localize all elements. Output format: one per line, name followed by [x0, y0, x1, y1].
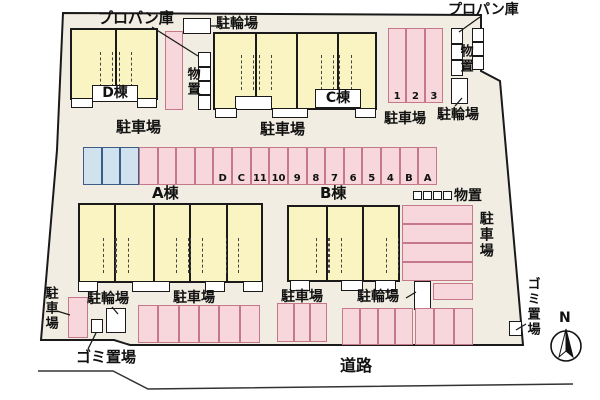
parking-ne-label: 駐車場	[384, 112, 426, 127]
bicycle-ne-label: 駐輪場	[437, 108, 479, 123]
building-d-label: D棟	[102, 86, 128, 101]
porch	[355, 108, 376, 118]
porch	[71, 98, 93, 108]
parking-spot	[179, 305, 199, 343]
storage-box	[423, 191, 432, 200]
building-d-entrance: D棟	[92, 85, 138, 102]
stair-icon	[339, 55, 352, 90]
parking-spot	[138, 305, 158, 343]
parking-spot: 9	[288, 147, 307, 185]
porch	[243, 281, 263, 292]
parking-spot: 10	[269, 147, 288, 185]
bicycle-parking-sw	[106, 308, 126, 333]
parking-spot: 4	[381, 147, 400, 185]
stair-icon	[100, 52, 113, 87]
garbage-area-sw	[91, 319, 103, 333]
parking-spot	[139, 147, 158, 185]
stair-icon	[103, 238, 116, 273]
parking-spot	[277, 303, 294, 342]
storage-box	[472, 28, 484, 42]
south-parking-group	[138, 305, 260, 343]
parking-spot	[360, 308, 378, 345]
stair-icon	[119, 52, 132, 87]
compass-icon	[551, 329, 581, 361]
numbered-parking: 123	[388, 28, 443, 103]
building-c-entrance: C棟	[315, 89, 361, 108]
bicycle-parking-b	[414, 281, 431, 310]
propane-ne-label: プロパン庫	[448, 3, 519, 18]
south-parking-group	[277, 303, 327, 342]
parking-spot: B	[400, 147, 419, 185]
parking-spot-label: B	[401, 173, 418, 184]
garbage-sw-label: ゴミ置場	[76, 350, 136, 366]
parking-spot-label: 10	[270, 173, 287, 184]
parking-w-label: 駐車場	[43, 286, 57, 331]
middle-parking-row: DC1110987654BA	[83, 147, 437, 185]
porch	[132, 281, 170, 292]
parking-spot	[378, 308, 396, 345]
stair-icon	[316, 238, 329, 273]
porch	[272, 108, 308, 118]
storage-ne-label: 物置	[458, 44, 472, 74]
storage-nw-label: 物置	[185, 67, 199, 97]
parking-spot-label: 5	[363, 173, 380, 184]
north-label: N	[559, 311, 571, 326]
parking-spot	[310, 303, 327, 342]
parking-spot	[240, 305, 260, 343]
building-a-label: A棟	[152, 186, 179, 202]
parking-spot	[395, 308, 413, 345]
bicycle-sb-label: 駐輪場	[357, 290, 399, 305]
porch	[215, 108, 237, 118]
parking-spot	[165, 31, 183, 110]
parking-spot: 5	[362, 147, 381, 185]
south-parking-group	[415, 308, 473, 345]
parking-c-label: 駐車場	[260, 122, 305, 138]
parking-spot: 11	[251, 147, 270, 185]
building-c-label: C棟	[326, 91, 350, 106]
parking-spot	[402, 205, 473, 224]
porch	[137, 98, 157, 108]
parking-d-label: 駐車場	[116, 120, 161, 136]
parking-spot	[158, 147, 177, 185]
parking-spot	[294, 303, 311, 342]
parking-spot: A	[418, 147, 437, 185]
parking-spot: 2	[406, 28, 424, 103]
bicycle-parking-north	[183, 18, 211, 34]
unit-divider	[362, 207, 364, 280]
stair-icon	[321, 55, 334, 90]
site-plan: D棟 C棟 物置 123 物置 DC1110987654BA	[0, 0, 600, 400]
parking-spot-label: 9	[289, 173, 306, 184]
parking-spot	[158, 305, 178, 343]
parking-spot	[68, 297, 88, 338]
bicycle-n-label: 駐輪場	[216, 17, 258, 32]
parking-spot: 8	[307, 147, 326, 185]
stair-icon	[329, 238, 342, 273]
building-b-label: B棟	[320, 186, 346, 202]
storage-box	[472, 56, 484, 70]
unit-divider	[153, 205, 155, 281]
parking-spot	[199, 305, 219, 343]
south-parking-group	[342, 308, 413, 345]
building-c-entrance	[235, 96, 272, 110]
parking-spot-label: 6	[345, 173, 362, 184]
parking-spot-label: 3	[426, 91, 442, 102]
storage-box	[413, 191, 422, 200]
parking-spot	[454, 308, 473, 345]
parking-spot: 1	[388, 28, 406, 103]
parking-spot	[102, 147, 121, 185]
storage-e-label: 物置	[454, 189, 482, 204]
parking-spot-label: A	[419, 173, 436, 184]
parking-spot	[402, 262, 473, 281]
road-lower-edge	[38, 371, 573, 389]
garbage-area-se	[509, 321, 522, 336]
garbage-se-label: ゴミ置場	[525, 277, 539, 337]
parking-spot: 7	[325, 147, 344, 185]
stair-icon	[241, 55, 254, 90]
bicycle-parking-ne	[451, 78, 468, 104]
storage-box	[443, 191, 452, 200]
parking-spot-label: D	[214, 173, 231, 184]
parking-spot	[433, 283, 473, 300]
parking-spot	[402, 243, 473, 262]
propane-nw-label: プロパン庫	[98, 11, 174, 27]
parking-spot: C	[232, 147, 251, 185]
stair-icon	[190, 238, 203, 273]
storage-box	[198, 95, 211, 110]
parking-sa-label: 駐車場	[173, 291, 215, 306]
leader-garbage-sw	[88, 333, 96, 349]
parking-spot-label: 2	[407, 91, 423, 102]
parking-spot-label: 8	[308, 173, 325, 184]
parking-spot-label: 7	[326, 173, 343, 184]
parking-spot	[402, 224, 473, 243]
parking-spot	[415, 308, 434, 345]
parking-spot	[83, 147, 102, 185]
parking-spot-label: 4	[382, 173, 399, 184]
storage-box	[433, 191, 442, 200]
stair-icon	[386, 238, 399, 273]
stair-icon	[176, 238, 189, 273]
parking-spot	[120, 147, 139, 185]
propane-box-nw	[198, 52, 211, 67]
bicycle-sw-label: 駐輪場	[87, 292, 129, 307]
parking-spot	[195, 147, 214, 185]
parking-spot	[342, 308, 360, 345]
parking-e-label: 駐車場	[478, 211, 493, 259]
parking-spot	[434, 308, 453, 345]
stair-icon	[259, 55, 272, 90]
parking-spot	[219, 305, 239, 343]
unit-divider	[296, 34, 298, 108]
building-b	[287, 205, 400, 282]
stair-icon	[116, 238, 129, 273]
east-parking	[402, 205, 473, 281]
storage-box	[451, 28, 463, 44]
stair-icon	[226, 238, 239, 273]
parking-spot: 3	[425, 28, 443, 103]
parking-spot-label: 1	[389, 91, 405, 102]
parking-sb-label: 駐車場	[281, 290, 323, 305]
parking-spot: 6	[344, 147, 363, 185]
parking-spot-label: 11	[252, 173, 269, 184]
parking-spot	[176, 147, 195, 185]
parking-spot: D	[213, 147, 232, 185]
road-label: 道路	[340, 358, 372, 375]
storage-box	[472, 42, 484, 56]
parking-spot-label: C	[233, 173, 250, 184]
